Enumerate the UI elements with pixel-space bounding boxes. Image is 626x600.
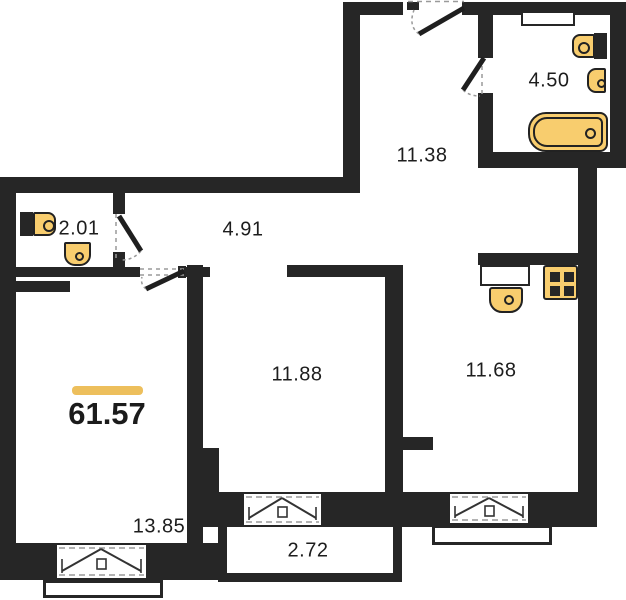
duct-shaft-wall xyxy=(15,281,70,292)
bathtub-icon xyxy=(528,112,608,152)
wc-door xyxy=(108,208,156,270)
wall-segment xyxy=(187,265,203,580)
sink-icon xyxy=(64,242,91,266)
wall-segment xyxy=(530,492,595,527)
window-bedroom xyxy=(55,543,148,580)
sink-icon xyxy=(587,68,606,93)
bathroom-niche xyxy=(521,11,575,26)
balcony-door-living xyxy=(242,492,323,527)
wall-segment xyxy=(385,277,403,493)
stove-icon xyxy=(543,265,578,300)
toilet-icon xyxy=(33,212,56,236)
room-label-bedroom: 13.85 xyxy=(133,516,186,539)
wall-segment xyxy=(0,177,360,193)
floor-plan: 61.57 11.38 4.50 2.01 4.91 11.88 11.68 1… xyxy=(0,0,626,600)
wall-segment xyxy=(0,177,16,580)
french-balcony-ledge-bedroom xyxy=(43,580,163,598)
wall-segment xyxy=(478,152,626,168)
balcony-wall-bottom xyxy=(218,573,402,582)
room-label-kitchen: 11.68 xyxy=(465,360,516,383)
wall-segment xyxy=(287,265,403,277)
wall-stub xyxy=(403,437,433,450)
window-kitchen xyxy=(448,492,530,525)
wall-segment xyxy=(578,163,597,527)
room-label-bathroom: 4.50 xyxy=(529,70,570,93)
wall-segment xyxy=(478,95,493,152)
room-label-balcony: 2.72 xyxy=(288,540,329,563)
wall-segment xyxy=(0,543,55,580)
wall-segment xyxy=(323,492,448,527)
bedroom-door xyxy=(135,262,191,298)
toilet-cistern xyxy=(20,212,33,236)
wall-pilaster xyxy=(203,448,219,527)
room-label-wc: 2.01 xyxy=(59,218,100,241)
kitchen-counter-wall xyxy=(478,253,578,265)
french-balcony-ledge-kitchen xyxy=(432,525,552,545)
wall-segment xyxy=(343,2,360,193)
wall-segment xyxy=(610,2,626,168)
entrance-door xyxy=(400,0,470,45)
wall-segment xyxy=(218,492,242,527)
room-label-living: 11.88 xyxy=(271,364,322,387)
room-label-corridor: 4.91 xyxy=(223,219,264,242)
toilet-cistern xyxy=(594,33,607,59)
toilet-icon xyxy=(572,34,595,58)
room-label-hall: 11.38 xyxy=(396,145,447,168)
bathroom-door xyxy=(455,48,497,103)
kitchen-cabinet xyxy=(480,265,530,286)
sink-icon xyxy=(489,287,523,313)
wall-segment xyxy=(148,543,218,580)
total-area-label: 61.57 xyxy=(68,396,146,432)
accent-bar xyxy=(72,386,143,395)
